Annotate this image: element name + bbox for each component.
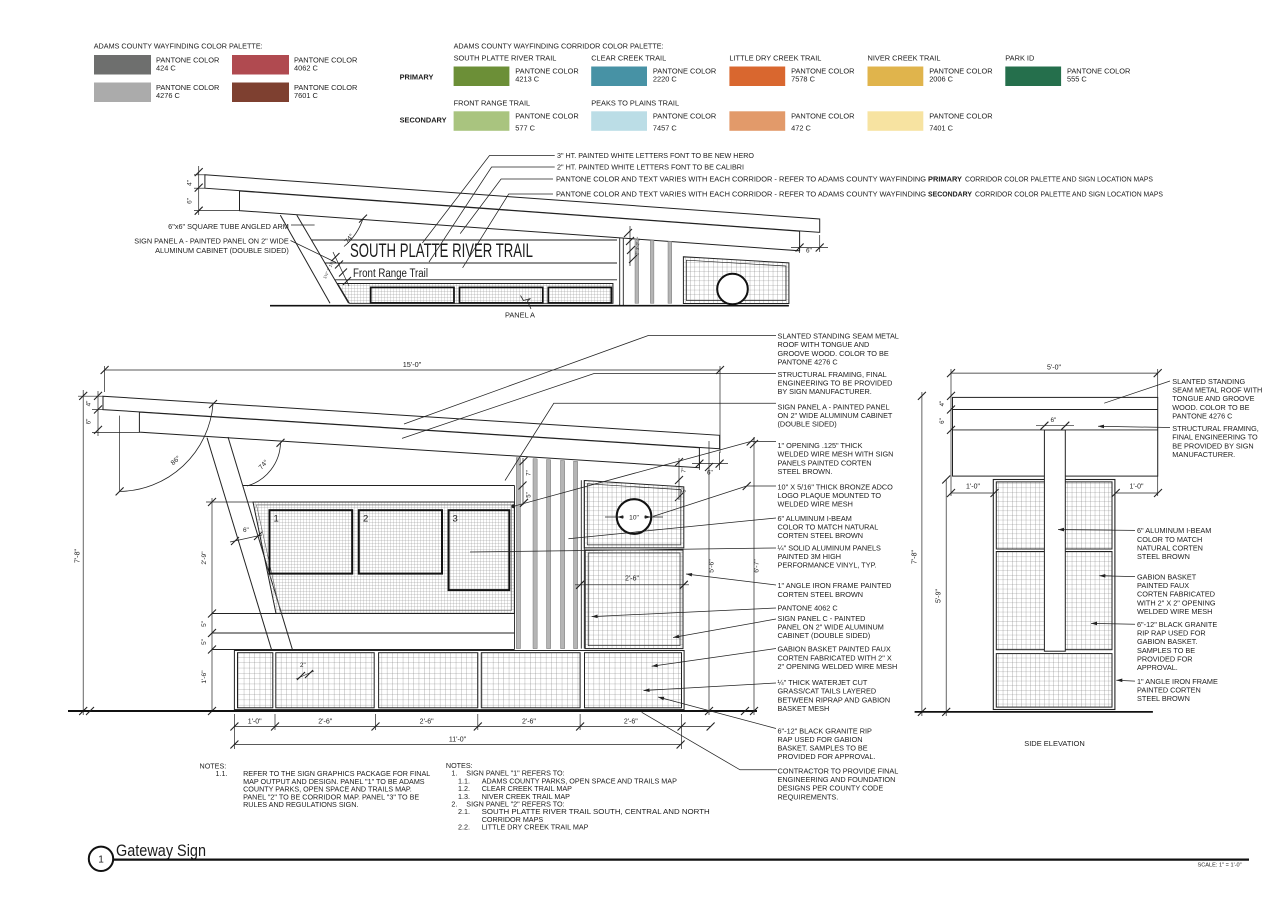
svg-text:7": 7" <box>682 467 688 472</box>
svg-text:6": 6" <box>86 419 93 425</box>
svg-text:SIDE ELEVATION: SIDE ELEVATION <box>1024 739 1085 748</box>
svg-text:PRIMARY: PRIMARY <box>400 73 434 82</box>
svg-text:SCALE: 1" = 1'-0": SCALE: 1" = 1'-0" <box>1198 863 1242 869</box>
svg-text:6": 6" <box>707 470 713 477</box>
svg-text:7'-8": 7'-8" <box>75 549 82 563</box>
svg-text:2'-6": 2'-6" <box>318 719 332 726</box>
svg-text:1'-0": 1'-0" <box>1130 484 1144 491</box>
svg-text:2220 C: 2220 C <box>653 75 677 84</box>
svg-text:PROVIDED FOR APPROVAL.: PROVIDED FOR APPROVAL. <box>778 752 876 761</box>
svg-text:PEAKS TO PLAINS TRAIL: PEAKS TO PLAINS TRAIL <box>591 99 679 108</box>
svg-text:7578 C: 7578 C <box>791 75 815 84</box>
svg-text:4062 C: 4062 C <box>294 63 318 72</box>
svg-text:7401 C: 7401 C <box>929 124 953 133</box>
svg-text:PANTONE COLOR: PANTONE COLOR <box>653 112 716 121</box>
svg-text:PARK ID: PARK ID <box>1005 54 1034 63</box>
svg-text:SECONDARY: SECONDARY <box>928 190 972 199</box>
svg-text:4": 4" <box>86 401 93 407</box>
svg-text:2: 2 <box>363 514 368 525</box>
svg-text:LITTLE DRY CREEK TRAIL: LITTLE DRY CREEK TRAIL <box>729 54 821 63</box>
svg-text:10": 10" <box>629 515 639 522</box>
svg-text:7'-8": 7'-8" <box>912 550 919 564</box>
svg-text:LITTLE DRY CREEK TRAIL MAP: LITTLE DRY CREEK TRAIL MAP <box>482 823 589 832</box>
svg-text:424 C: 424 C <box>156 63 176 72</box>
svg-text:6": 6" <box>1051 417 1057 424</box>
svg-text:5": 5" <box>201 639 208 645</box>
svg-text:SOUTH PLATTE RIVER TRAIL: SOUTH PLATTE RIVER TRAIL <box>454 54 557 63</box>
svg-text:6": 6" <box>243 527 249 534</box>
svg-text:REQUIREMENTS.: REQUIREMENTS. <box>778 792 839 801</box>
svg-text:5'-9": 5'-9" <box>936 589 943 603</box>
svg-text:PERFORMANCE VINYL, TYP.: PERFORMANCE VINYL, TYP. <box>778 561 877 570</box>
svg-text:RULES AND REGULATIONS SIGN.: RULES AND REGULATIONS SIGN. <box>243 800 358 809</box>
svg-text:STEEL BROWN: STEEL BROWN <box>1137 552 1190 561</box>
svg-text:2" HT. PAINTED WHITE LETTERS F: 2" HT. PAINTED WHITE LETTERS FONT TO BE … <box>557 163 744 172</box>
svg-text:WELDED WIRE MESH: WELDED WIRE MESH <box>778 500 853 509</box>
svg-text:5'-0": 5'-0" <box>1047 365 1061 372</box>
svg-text:CLEAR CREEK TRAIL: CLEAR CREEK TRAIL <box>591 54 666 63</box>
svg-text:BY SIGN MANUFACTURER.: BY SIGN MANUFACTURER. <box>778 387 872 396</box>
svg-text:STEEL BROWN: STEEL BROWN <box>1137 694 1190 703</box>
svg-text:PRIMARY: PRIMARY <box>928 175 962 184</box>
svg-text:(DOUBLE SIDED): (DOUBLE SIDED) <box>778 420 837 429</box>
svg-text:CORRIDOR COLOR PALETTE AND SIG: CORRIDOR COLOR PALETTE AND SIGN LOCATION… <box>965 175 1153 184</box>
svg-text:5'-6": 5'-6" <box>709 559 716 573</box>
svg-text:2'-9": 2'-9" <box>201 551 208 565</box>
svg-text:1'-0": 1'-0" <box>248 719 262 726</box>
svg-text:7601 C: 7601 C <box>294 91 318 100</box>
svg-text:Front Range Trail: Front Range Trail <box>353 268 428 280</box>
svg-text:CABINET (DOUBLE SIDED): CABINET (DOUBLE SIDED) <box>778 631 871 640</box>
svg-text:2.2.: 2.2. <box>458 823 470 832</box>
svg-text:PANTONE 4276 C: PANTONE 4276 C <box>1172 411 1232 420</box>
svg-text:555 C: 555 C <box>1067 75 1087 84</box>
svg-text:4276 C: 4276 C <box>156 91 180 100</box>
svg-text:577 C: 577 C <box>515 124 535 133</box>
svg-text:2" OPENING WELDED WIRE MESH: 2" OPENING WELDED WIRE MESH <box>778 662 898 671</box>
svg-text:PANTONE COLOR AND TEXT VARIES: PANTONE COLOR AND TEXT VARIES WITH EACH … <box>556 190 926 199</box>
svg-text:4": 4" <box>187 180 194 186</box>
svg-text:STEEL BROWN.: STEEL BROWN. <box>778 467 833 476</box>
svg-text:SECONDARY: SECONDARY <box>400 116 447 125</box>
svg-text:1: 1 <box>274 514 279 525</box>
svg-text:PANTONE COLOR: PANTONE COLOR <box>929 112 992 121</box>
svg-text:7": 7" <box>527 470 533 475</box>
svg-text:2'-6": 2'-6" <box>522 719 536 726</box>
svg-text:PANTONE 4276 C: PANTONE 4276 C <box>778 357 838 366</box>
svg-text:2": 2" <box>300 662 306 669</box>
svg-text:1.: 1. <box>451 769 457 778</box>
svg-text:15'-0": 15'-0" <box>403 360 422 369</box>
svg-text:PANTONE COLOR: PANTONE COLOR <box>791 112 854 121</box>
svg-text:BASKET MESH: BASKET MESH <box>778 704 830 713</box>
svg-text:CORTEN STEEL BROWN: CORTEN STEEL BROWN <box>778 531 864 540</box>
svg-text:2.: 2. <box>451 800 457 809</box>
svg-text:2006 C: 2006 C <box>929 75 953 84</box>
svg-text:6"x6" SQUARE TUBE ANGLED ARM: 6"x6" SQUARE TUBE ANGLED ARM <box>168 222 289 231</box>
svg-text:6": 6" <box>939 418 946 424</box>
svg-text:3" HT. PAINTED WHITE LETTERS F: 3" HT. PAINTED WHITE LETTERS FONT TO BE … <box>557 151 754 160</box>
svg-text:4213 C: 4213 C <box>515 75 539 84</box>
svg-text:1.1.: 1.1. <box>216 769 228 778</box>
svg-text:PANTONE COLOR AND TEXT VARIES: PANTONE COLOR AND TEXT VARIES WITH EACH … <box>556 175 926 184</box>
svg-text:7457 C: 7457 C <box>653 124 677 133</box>
svg-text:2'-6": 2'-6" <box>420 719 434 726</box>
svg-text:NIVER CREEK TRAIL: NIVER CREEK TRAIL <box>868 54 941 63</box>
svg-text:WELDED WIRE MESH: WELDED WIRE MESH <box>1137 607 1212 616</box>
svg-text:SIGN PANEL A - PAINTED PANEL O: SIGN PANEL A - PAINTED PANEL ON 2" WIDE <box>134 237 289 246</box>
svg-text:1'-0": 1'-0" <box>966 484 980 491</box>
svg-text:5": 5" <box>527 492 533 497</box>
svg-text:Gateway Sign: Gateway Sign <box>116 842 206 860</box>
svg-text:FRONT RANGE TRAIL: FRONT RANGE TRAIL <box>454 99 531 108</box>
svg-text:PANTONE COLOR: PANTONE COLOR <box>515 112 578 121</box>
svg-text:4": 4" <box>939 401 946 407</box>
svg-text:CORRIDOR COLOR PALETTE AND SIG: CORRIDOR COLOR PALETTE AND SIGN LOCATION… <box>975 190 1163 199</box>
svg-text:ALUMINUM CABINET (DOUBLE SIDED: ALUMINUM CABINET (DOUBLE SIDED) <box>155 246 289 255</box>
svg-text:1'-6": 1'-6" <box>201 670 208 684</box>
svg-text:3: 3 <box>453 514 458 525</box>
svg-text:6": 6" <box>806 248 812 255</box>
svg-text:PANTONE 4062 C: PANTONE 4062 C <box>778 603 838 612</box>
svg-text:2.1.: 2.1. <box>458 807 470 816</box>
svg-text:ADAMS COUNTY WAYFINDING COLOR: ADAMS COUNTY WAYFINDING COLOR PALETTE: <box>94 42 263 51</box>
svg-text:6": 6" <box>187 198 194 204</box>
svg-text:ADAMS COUNTY WAYFINDING CORRID: ADAMS COUNTY WAYFINDING CORRIDOR COLOR P… <box>454 42 664 51</box>
svg-text:11'-0": 11'-0" <box>449 737 467 744</box>
svg-text:CORTEN STEEL BROWN: CORTEN STEEL BROWN <box>778 590 864 599</box>
svg-text:6'-7": 6'-7" <box>754 559 761 573</box>
svg-text:2'-6": 2'-6" <box>625 576 639 583</box>
svg-text:APPROVAL.: APPROVAL. <box>1137 663 1178 672</box>
svg-text:2'-6": 2'-6" <box>624 719 638 726</box>
svg-text:MANUFACTURER.: MANUFACTURER. <box>1172 450 1235 459</box>
svg-text:472 C: 472 C <box>791 124 811 133</box>
svg-text:1: 1 <box>98 854 104 865</box>
svg-text:5": 5" <box>201 621 208 627</box>
svg-text:PANEL A: PANEL A <box>505 311 535 320</box>
